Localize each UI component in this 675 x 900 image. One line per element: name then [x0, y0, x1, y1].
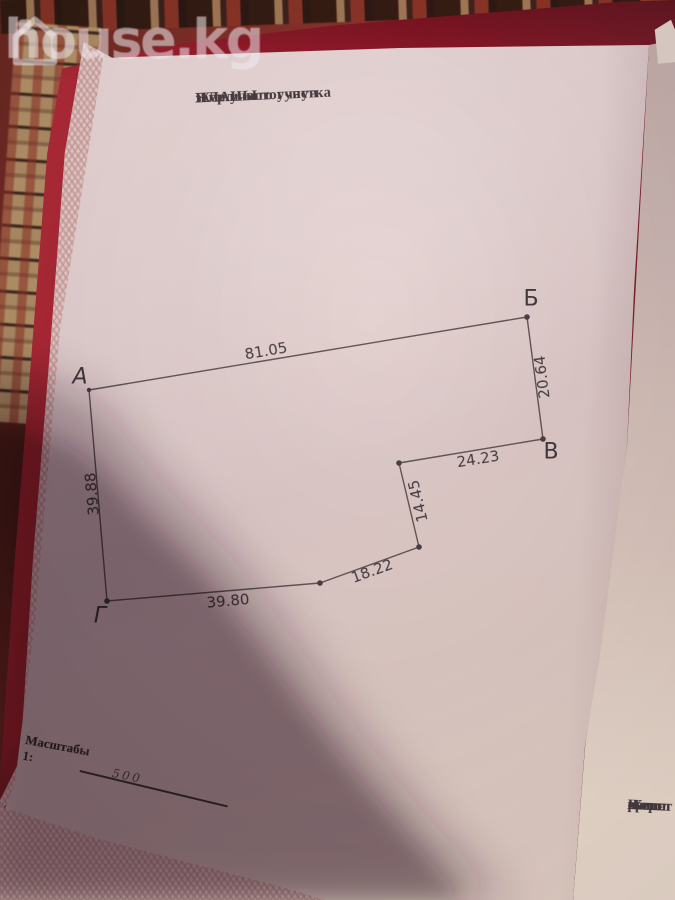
photo-of-land-plan-document: Жер участогунун ПЛАНЫ ПЛАН земельного уч…: [0, 0, 675, 900]
photographer-shadow: [0, 0, 675, 900]
watermark-brand-text: house.kg: [4, 13, 262, 67]
